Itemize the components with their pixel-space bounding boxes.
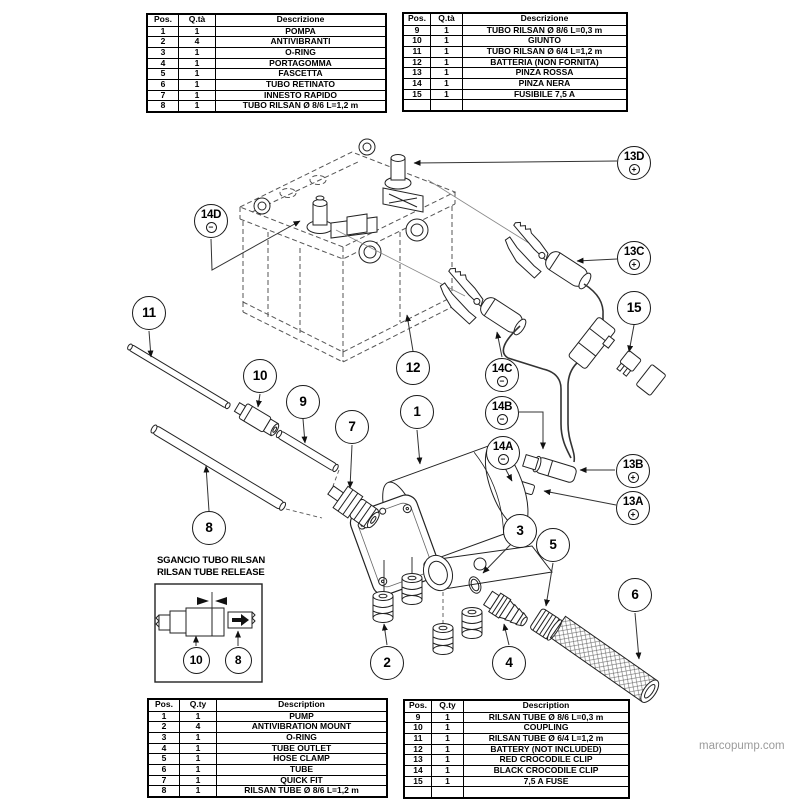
- callout-10: 10: [243, 359, 277, 393]
- callout-label: 10: [190, 654, 203, 666]
- minus-icon: −: [206, 222, 217, 233]
- plus-icon: +: [629, 259, 640, 270]
- minus-icon: −: [497, 414, 508, 425]
- callout-13b: 13B+: [616, 454, 650, 488]
- minus-icon: −: [497, 376, 508, 387]
- callout-label: 14A: [493, 441, 513, 453]
- callout-label: 10: [253, 370, 267, 382]
- callout-14c: 14C−: [485, 358, 519, 392]
- callout-12: 12: [396, 351, 430, 385]
- callout-13d: 13D+: [617, 146, 651, 180]
- callout-label: 11: [142, 307, 156, 319]
- callout-label: 14B: [492, 401, 512, 413]
- callout-4: 4: [492, 646, 526, 680]
- callout-14a: 14A−: [486, 436, 520, 470]
- callout-14b: 14B−: [485, 396, 519, 430]
- callout-7: 7: [335, 410, 369, 444]
- callout-8: 8: [192, 511, 226, 545]
- callout-label: 7: [348, 421, 355, 433]
- callout-label: 9: [299, 396, 306, 408]
- plus-icon: +: [628, 509, 639, 520]
- callout-6: 6: [618, 578, 652, 612]
- callout-2: 2: [370, 646, 404, 680]
- callout-label: 8: [205, 522, 212, 534]
- callout-8: 8: [225, 647, 252, 674]
- callout-15: 15: [617, 291, 651, 325]
- callout-label: 14C: [492, 363, 512, 375]
- callout-label: 13A: [623, 496, 643, 508]
- minus-icon: −: [498, 454, 509, 465]
- callout-layer: 1114D−1097121813D+13C+1514C−14B−14A−13B+…: [0, 0, 803, 803]
- callout-14d: 14D−: [194, 204, 228, 238]
- callout-label: 8: [235, 654, 241, 666]
- plus-icon: +: [629, 164, 640, 175]
- callout-1: 1: [400, 395, 434, 429]
- callout-9: 9: [286, 385, 320, 419]
- callout-label: 12: [406, 362, 420, 374]
- callout-label: 5: [549, 539, 556, 551]
- callout-label: 2: [383, 657, 390, 669]
- callout-label: 1: [413, 406, 420, 418]
- callout-3: 3: [503, 514, 537, 548]
- callout-label: 13B: [623, 459, 643, 471]
- callout-11: 11: [132, 296, 166, 330]
- callout-label: 15: [627, 302, 641, 314]
- callout-13c: 13C+: [617, 241, 651, 275]
- plus-icon: +: [628, 472, 639, 483]
- callout-label: 13C: [624, 246, 644, 258]
- callout-13a: 13A+: [616, 491, 650, 525]
- callout-label: 14D: [201, 209, 221, 221]
- callout-label: 6: [631, 589, 638, 601]
- callout-5: 5: [536, 528, 570, 562]
- callout-label: 3: [516, 525, 523, 537]
- callout-label: 4: [505, 657, 512, 669]
- callout-10: 10: [183, 647, 210, 674]
- callout-label: 13D: [624, 151, 644, 163]
